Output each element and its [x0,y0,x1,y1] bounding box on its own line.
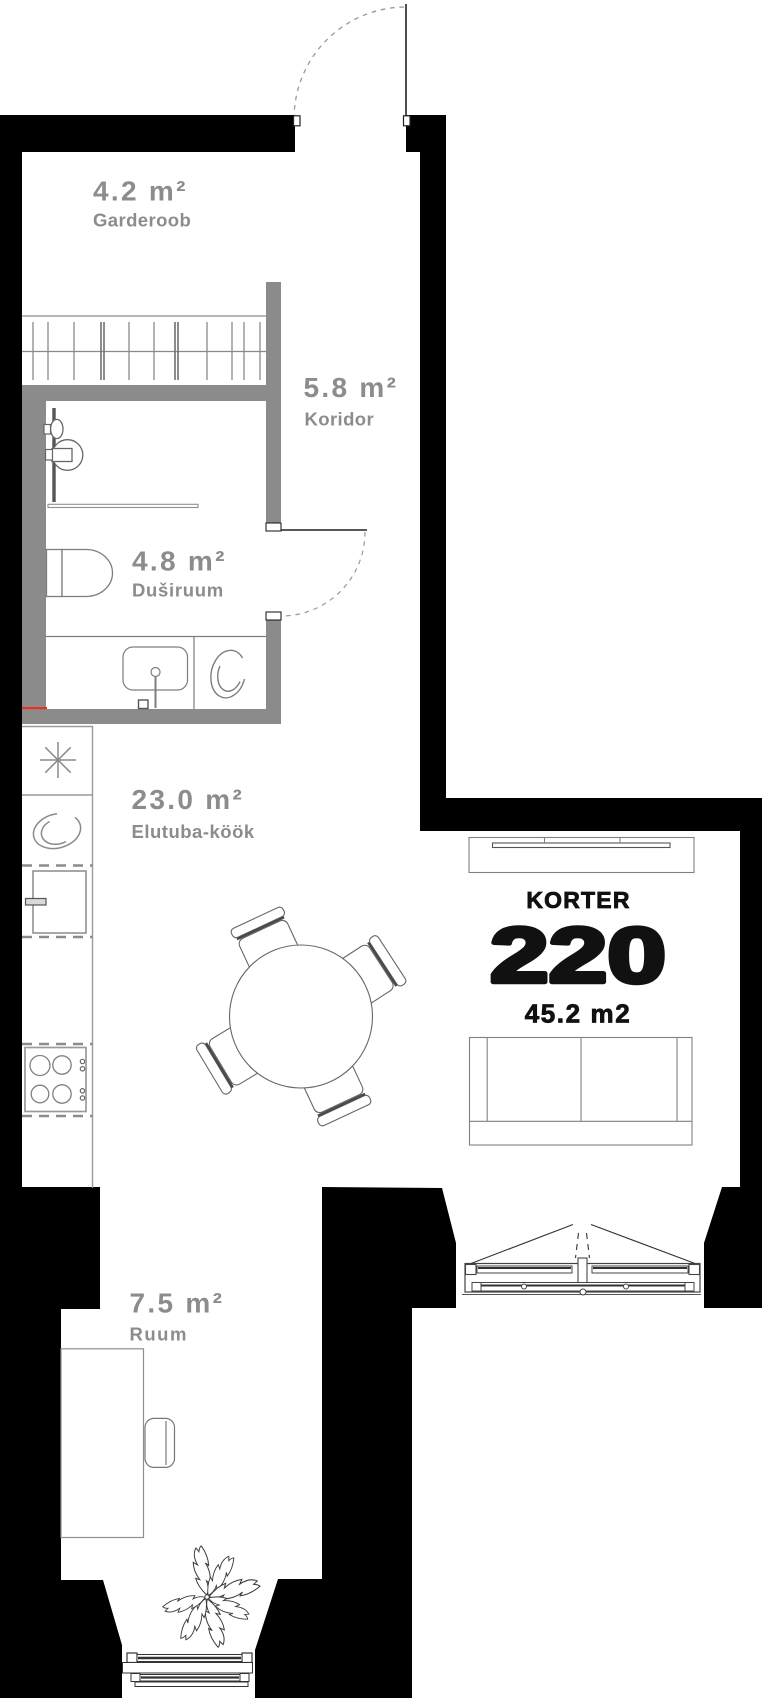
svg-text:5.8 m²: 5.8 m² [304,372,399,403]
svg-text:Ruum: Ruum [130,1324,188,1345]
svg-text:Garderoob: Garderoob [93,210,191,231]
svg-text:220: 220 [490,911,666,999]
svg-text:KORTER: KORTER [526,887,630,913]
svg-text:Elutuba-köök: Elutuba-köök [132,821,255,842]
svg-text:Koridor: Koridor [305,409,375,430]
svg-text:4.8 m²: 4.8 m² [132,546,227,577]
svg-text:Duširuum: Duširuum [132,580,224,601]
svg-text:23.0 m²: 23.0 m² [132,784,245,815]
svg-text:4.2 m²: 4.2 m² [93,176,188,207]
svg-text:45.2 m2: 45.2 m2 [525,999,632,1029]
svg-text:7.5 m²: 7.5 m² [130,1288,225,1319]
